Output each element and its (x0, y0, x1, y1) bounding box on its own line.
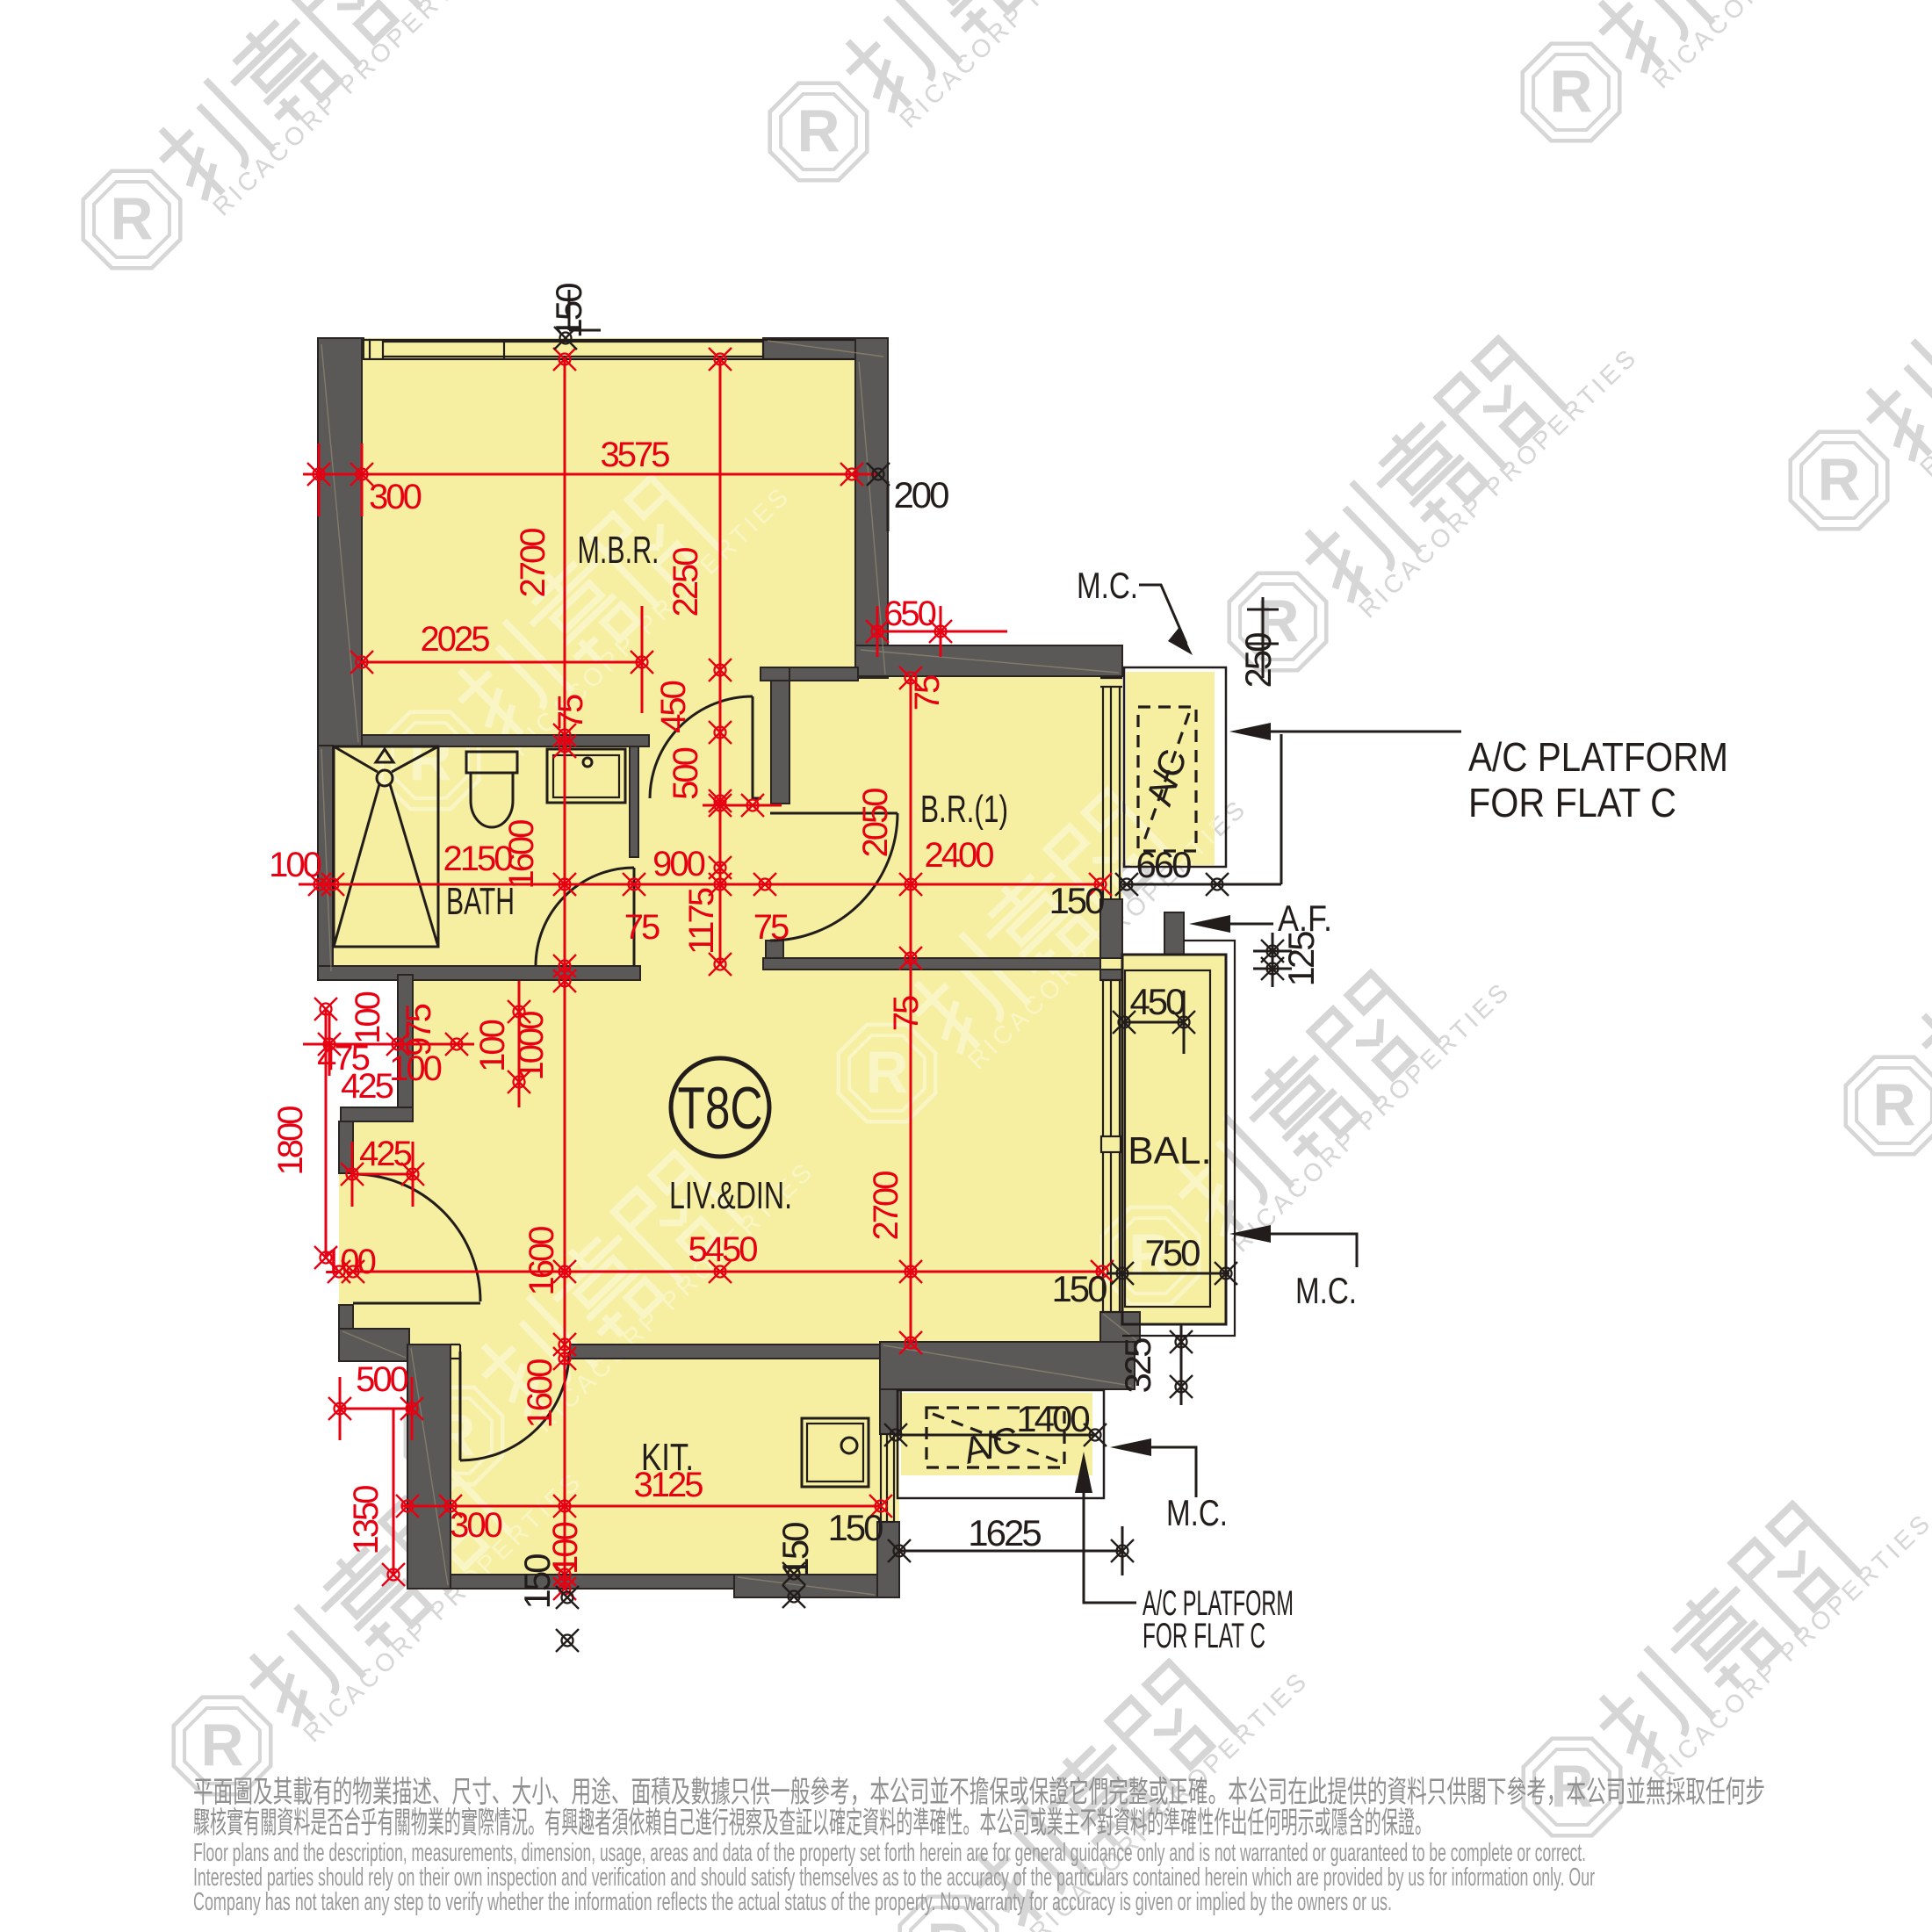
svg-text:KIT.: KIT. (641, 1436, 694, 1479)
svg-text:150: 150 (775, 1523, 816, 1578)
svg-text:300: 300 (450, 1506, 501, 1545)
svg-text:75: 75 (551, 695, 590, 730)
svg-text:125: 125 (1280, 932, 1322, 987)
svg-text:FOR FLAT C: FOR FLAT C (1468, 780, 1676, 825)
svg-text:2700: 2700 (867, 1171, 905, 1241)
svg-text:1625: 1625 (968, 1512, 1041, 1554)
svg-text:150: 150 (516, 1554, 558, 1610)
svg-text:3575: 3575 (601, 436, 670, 474)
svg-text:1175: 1175 (682, 888, 721, 955)
svg-text:FOR FLAT C: FOR FLAT C (1143, 1617, 1265, 1655)
svg-text:Company has not taken any step: Company has not taken any step to verify… (193, 1888, 1392, 1916)
svg-text:T8C: T8C (678, 1075, 763, 1142)
svg-text:B.R.(1): B.R.(1) (920, 788, 1008, 831)
svg-text:2250: 2250 (667, 548, 705, 617)
svg-text:1600: 1600 (523, 1227, 561, 1296)
svg-text:425: 425 (341, 1067, 393, 1106)
svg-text:660: 660 (1135, 844, 1191, 885)
svg-text:100: 100 (473, 1020, 512, 1071)
svg-text:2025: 2025 (421, 620, 490, 659)
svg-text:100: 100 (269, 846, 321, 884)
svg-text:100: 100 (349, 991, 387, 1043)
svg-text:450: 450 (1129, 981, 1185, 1022)
svg-text:250: 250 (1237, 633, 1279, 688)
svg-text:2050: 2050 (856, 789, 895, 858)
svg-text:150: 150 (827, 1507, 883, 1548)
svg-text:2700: 2700 (514, 529, 552, 598)
svg-text:150: 150 (1049, 880, 1104, 921)
svg-text:975: 975 (400, 1004, 438, 1056)
svg-text:150: 150 (548, 284, 589, 339)
svg-text:驟核實有關資料是否合乎有關物業的實際情況。有興趣者須依賴自己: 驟核實有關資料是否合乎有關物業的實際情況。有興趣者須依賴自己進行視察及查証以確定… (193, 1806, 1431, 1840)
svg-text:650: 650 (883, 595, 935, 633)
svg-text:1000: 1000 (512, 1012, 551, 1081)
svg-text:M.B.R.: M.B.R. (578, 529, 660, 572)
svg-text:1350: 1350 (347, 1486, 386, 1555)
svg-text:BATH: BATH (446, 880, 515, 923)
svg-text:150: 150 (1051, 1268, 1107, 1309)
svg-text:平面圖及其載有的物業描述、尺寸、大小、用途、面積及數據只供一: 平面圖及其載有的物業描述、尺寸、大小、用途、面積及數據只供一般參考，本公司並不擔… (193, 1776, 1765, 1809)
svg-text:5450: 5450 (688, 1230, 758, 1269)
svg-text:900: 900 (652, 845, 704, 883)
svg-text:1400: 1400 (1016, 1398, 1089, 1439)
svg-text:2400: 2400 (925, 836, 994, 875)
svg-text:1600: 1600 (502, 820, 541, 890)
svg-text:75: 75 (624, 908, 660, 947)
svg-text:500: 500 (356, 1360, 407, 1399)
svg-text:75: 75 (753, 908, 789, 947)
svg-text:500: 500 (667, 747, 705, 799)
svg-text:200: 200 (893, 474, 948, 515)
svg-text:75: 75 (887, 996, 926, 1031)
svg-text:300: 300 (369, 478, 421, 516)
svg-text:1600: 1600 (521, 1359, 559, 1429)
svg-text:A.F.: A.F. (1278, 898, 1332, 939)
svg-text:LIV.&DIN.: LIV.&DIN. (669, 1174, 792, 1217)
svg-text:750: 750 (1144, 1232, 1200, 1273)
svg-text:M.C.: M.C. (1295, 1270, 1357, 1311)
svg-text:450: 450 (654, 681, 693, 732)
svg-text:BAL.: BAL. (1128, 1129, 1211, 1172)
svg-text:425: 425 (359, 1135, 411, 1173)
svg-text:100: 100 (389, 1049, 441, 1088)
svg-text:M.C.: M.C. (1077, 565, 1138, 606)
svg-text:A/C PLATFORM: A/C PLATFORM (1468, 734, 1728, 780)
svg-text:325: 325 (1117, 1338, 1158, 1394)
svg-text:1800: 1800 (271, 1107, 310, 1176)
svg-text:M.C.: M.C. (1166, 1492, 1228, 1533)
